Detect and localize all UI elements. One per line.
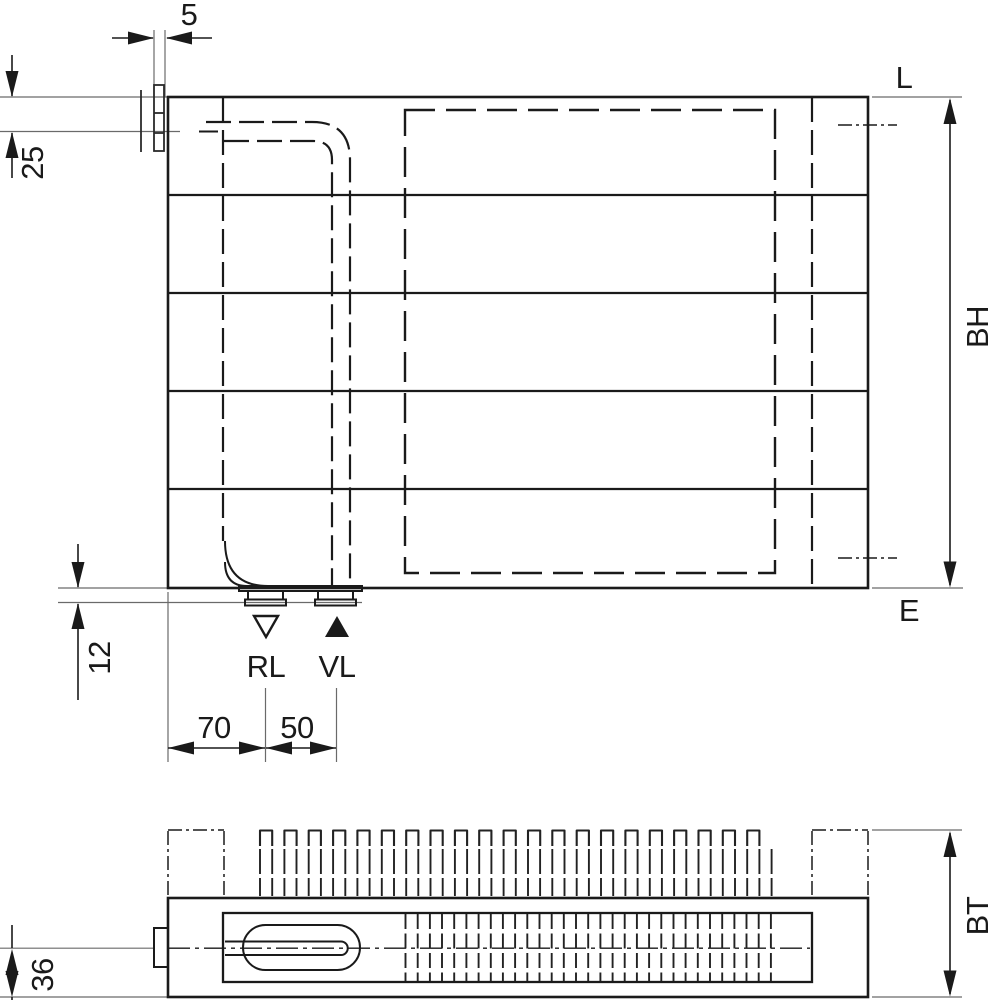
technical-drawing: 5 25 12 70 50 xyxy=(0,0,1000,1000)
convector-fin-cap xyxy=(552,831,564,847)
convector-fin-cap xyxy=(284,831,296,847)
return-label: RL xyxy=(247,649,286,684)
supply-flow-icon xyxy=(325,616,349,637)
arrowhead xyxy=(944,562,957,588)
arrowhead xyxy=(6,71,19,97)
dim-25-label: 25 xyxy=(15,146,50,179)
convector-fin-cap xyxy=(406,831,418,847)
dimension-center-to-front: 36 xyxy=(6,925,61,1000)
arrowhead xyxy=(72,562,85,588)
supply-pipe-outer xyxy=(206,122,350,586)
arrowhead xyxy=(166,32,192,45)
dim-50-label: 50 xyxy=(280,710,314,745)
top-view-radiator: BT 36 xyxy=(0,830,995,1000)
arrowhead xyxy=(239,742,265,755)
radiator-front-outline xyxy=(168,97,868,588)
dimension-top-to-pipe: 25 xyxy=(6,55,51,180)
wall-bracket-tab xyxy=(154,928,168,967)
arrowhead xyxy=(168,742,194,755)
level-L-label: L xyxy=(896,60,913,95)
dim-70-label: 70 xyxy=(197,710,231,745)
return-nozzle-body xyxy=(248,591,283,600)
convector-fin-cap xyxy=(577,831,589,847)
water-channel-outline xyxy=(223,913,812,982)
convector-fin-cap xyxy=(455,831,467,847)
convector-fin-cap xyxy=(382,831,394,847)
convector-fins xyxy=(260,831,772,982)
arrowhead xyxy=(310,742,336,755)
arrowhead xyxy=(72,603,85,629)
convector-fin-cap xyxy=(309,831,321,847)
dim-5-label: 5 xyxy=(181,0,198,32)
convector-fin-cap xyxy=(260,831,272,847)
wall-bracket xyxy=(154,85,164,151)
supply-pipe-inner xyxy=(224,141,332,586)
dimension-bracket-thickness: 5 xyxy=(112,0,212,45)
phantom-bracket-right xyxy=(812,830,868,896)
arrowhead xyxy=(944,831,957,857)
convector-fin-cap xyxy=(747,831,759,847)
convector-fin-cap xyxy=(650,831,662,847)
convector-fin-cap xyxy=(625,831,637,847)
convector-fin-cap xyxy=(601,831,613,847)
convector-fin-cap xyxy=(357,831,369,847)
dim-bt-label: BT xyxy=(960,896,995,935)
convector-fin-cap xyxy=(479,831,491,847)
phantom-bracket-left xyxy=(168,830,224,896)
convector-fin-cap xyxy=(674,831,686,847)
level-E-label: E xyxy=(899,593,919,628)
hidden-convector-outline xyxy=(405,110,775,573)
convector-fin-cap xyxy=(504,831,516,847)
return-elbow-outer xyxy=(225,541,268,586)
dim-36-label: 36 xyxy=(25,958,60,991)
convector-fin-cap xyxy=(528,831,540,847)
arrowhead xyxy=(6,971,19,997)
front-view-radiator: 5 25 12 70 50 xyxy=(0,0,995,762)
convector-fin-cap xyxy=(723,831,735,847)
arrowhead xyxy=(944,971,957,997)
dimension-connection-spacing: 70 50 xyxy=(168,710,336,755)
convector-fin-cap xyxy=(699,831,711,847)
supply-nozzle-body xyxy=(318,591,353,600)
dim-bh-label: BH xyxy=(960,306,995,348)
connection-boss xyxy=(243,925,360,970)
supply-label: VL xyxy=(319,649,356,684)
return-flow-icon xyxy=(254,616,278,637)
arrowhead xyxy=(944,98,957,124)
arrowhead xyxy=(128,32,154,45)
dimension-bottom-to-nozzle: 12 xyxy=(72,544,118,700)
convector-fin-cap xyxy=(333,831,345,847)
dimension-build-depth: BT xyxy=(944,831,996,997)
dimension-build-height: BH xyxy=(944,98,996,588)
convector-fin-cap xyxy=(431,831,443,847)
dim-12-label: 12 xyxy=(82,641,117,674)
